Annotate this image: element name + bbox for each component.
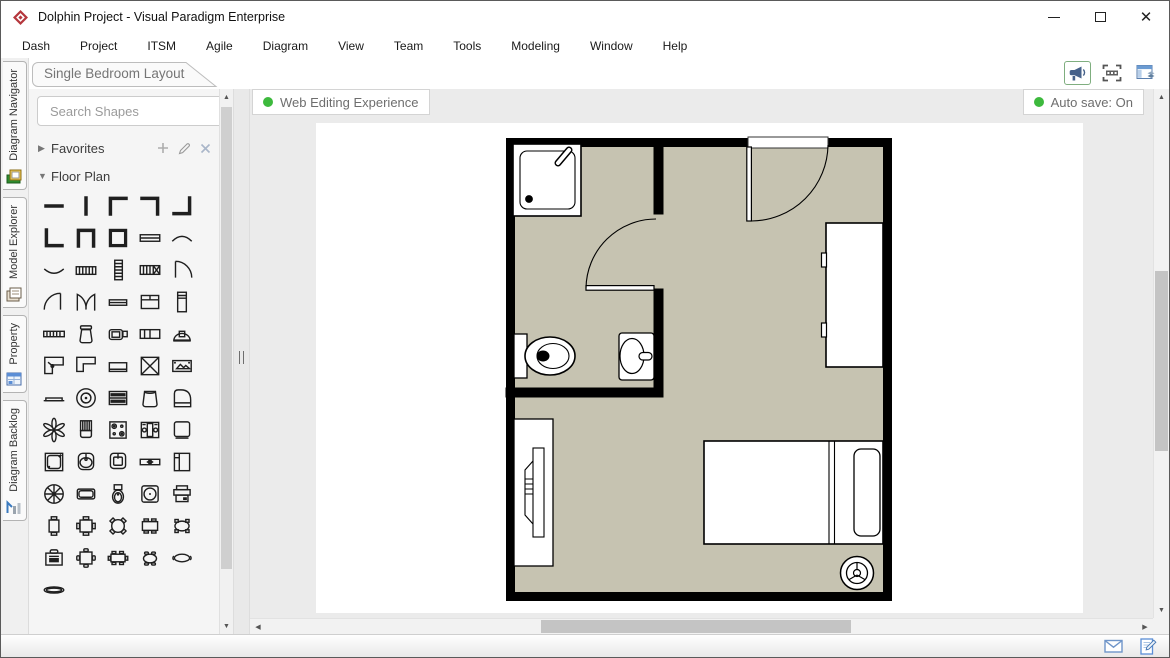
bathtub-icon — [73, 481, 99, 507]
badge-label: Auto save: On — [1051, 95, 1133, 110]
window-icon — [137, 225, 163, 251]
spoked-wheel-table-icon — [41, 481, 67, 507]
edit-icon[interactable] — [178, 142, 191, 155]
palette-shape-tall-cabinet[interactable] — [166, 286, 198, 318]
palette-shape-chest-of-drawers[interactable] — [102, 382, 134, 414]
menu-item-window[interactable]: Window — [575, 35, 648, 57]
palette-shape-oval-table-four-chairs[interactable] — [166, 510, 198, 542]
low-shelf-icon — [41, 385, 67, 411]
palette-shape-oval-table-two-chairs[interactable] — [166, 542, 198, 574]
scroll-right-icon[interactable]: ▶ — [1137, 619, 1153, 634]
laundry-basket-icon — [137, 385, 163, 411]
status-bar — [1, 634, 1169, 658]
tv-with-console-icon — [105, 321, 131, 347]
wall-vertical-icon — [73, 193, 99, 219]
expand-arrow-icon: ▼ — [38, 171, 51, 181]
printer-icon — [169, 481, 195, 507]
palette-shape-oval-table-four-chairs-alt[interactable] — [134, 542, 166, 574]
visual-paradigm-logo — [12, 9, 29, 26]
model-explorer-icon — [5, 285, 23, 303]
menu-item-project[interactable]: Project — [65, 35, 132, 57]
wall-u-shape-icon — [73, 225, 99, 251]
palette-shape-plant[interactable] — [38, 414, 70, 446]
palette-shape-printer[interactable] — [166, 478, 198, 510]
curved-wall-down-icon — [41, 257, 67, 283]
side-tab-diagram-navigator[interactable]: Diagram Navigator — [3, 61, 27, 190]
table-two-chairs-icon — [41, 513, 67, 539]
diagram-navigator-icon — [5, 167, 23, 185]
layout-panels-icon — [1136, 64, 1156, 82]
stairs-horizontal-icon — [73, 257, 99, 283]
layout-panels-button[interactable] — [1132, 61, 1159, 85]
minimize-icon — [1048, 17, 1060, 18]
palette-shape-grand-piano[interactable] — [166, 382, 198, 414]
oval-table-two-chairs-icon — [169, 545, 195, 571]
palette-shape-double-window-seat[interactable] — [134, 318, 166, 350]
palette-shape-sideboard[interactable] — [102, 350, 134, 382]
diagram-backlog-icon — [5, 498, 23, 516]
palette-shape-window-bench[interactable] — [134, 446, 166, 478]
palette-shape-rect-table-four-chairs[interactable] — [134, 510, 166, 542]
square-sink-icon — [105, 449, 131, 475]
door-quarter-right-icon — [169, 257, 195, 283]
minimize-button[interactable] — [1031, 1, 1077, 33]
toilet[interactable] — [514, 334, 575, 378]
fit-selection-icon — [1102, 64, 1122, 82]
ceiling-fan-icon — [73, 385, 99, 411]
palette-shape-wall-u-shape[interactable] — [70, 222, 102, 254]
office-desk-chair-icon — [41, 545, 67, 571]
green-dot-icon — [1034, 97, 1044, 107]
palette-shape-toilet[interactable] — [102, 478, 134, 510]
menu-item-view[interactable]: View — [323, 35, 379, 57]
palette-shape-round-side-table[interactable] — [134, 478, 166, 510]
double-door-icon — [73, 289, 99, 315]
shape-grid — [29, 190, 219, 606]
palette-shape-picture-frame[interactable] — [166, 350, 198, 382]
palette-scrollbar[interactable]: ▲ ▼ — [219, 89, 233, 634]
app-window: Dolphin Project - Visual Paradigm Enterp… — [0, 0, 1170, 658]
palette-shape-wall-lamp[interactable] — [166, 318, 198, 350]
palette-shape-refrigerator[interactable] — [166, 446, 198, 478]
plant-icon — [41, 417, 67, 443]
palette-shape-spoked-wheel-table[interactable] — [38, 478, 70, 510]
wall-horizontal-icon — [41, 193, 67, 219]
section-floor-plan[interactable]: ▼ Floor Plan — [29, 162, 219, 190]
palette-shape-stairs-with-landing[interactable] — [134, 254, 166, 286]
palette-shape-bathtub[interactable] — [70, 478, 102, 510]
tab-label: Single Bedroom Layout — [44, 66, 184, 81]
toilet-icon — [105, 481, 131, 507]
palette-shape-office-desk-chair[interactable] — [38, 542, 70, 574]
water-heater-icon — [73, 321, 99, 347]
palette-shape-stairs-horizontal[interactable] — [70, 254, 102, 286]
scroll-up-icon[interactable]: ▲ — [220, 89, 233, 105]
palette-shape-oval-sink[interactable] — [70, 446, 102, 478]
search-shapes-box[interactable] — [37, 96, 233, 126]
palette-shape-table-two-chairs[interactable] — [38, 510, 70, 542]
side-tab-diagram-backlog[interactable]: Diagram Backlog — [3, 400, 27, 521]
close-icon: ✕ — [1140, 10, 1153, 25]
palette-shape-round-table-four-chairs[interactable] — [102, 510, 134, 542]
corner-desk-right-icon — [73, 353, 99, 379]
palette-shape-corner-desk-left[interactable] — [38, 350, 70, 382]
menu-item-dash[interactable]: Dash — [7, 35, 65, 57]
fan[interactable] — [841, 557, 874, 590]
section-label: Favorites — [51, 141, 104, 156]
stove-top-icon — [105, 417, 131, 443]
palette-shape-stairs-vertical[interactable] — [102, 254, 134, 286]
diagram-page[interactable] — [316, 123, 1083, 613]
title-bar: Dolphin Project - Visual Paradigm Enterp… — [1, 1, 1169, 33]
palette-shape-wall-corner-top-right[interactable] — [134, 190, 166, 222]
chest-of-drawers-icon — [105, 385, 131, 411]
side-tab-label: Property — [8, 323, 20, 365]
side-tab-label: Diagram Navigator — [8, 69, 20, 161]
palette-shape-tv-with-console[interactable] — [102, 318, 134, 350]
palette-shape-washing-machine[interactable] — [134, 414, 166, 446]
wall-corner-top-right-icon — [137, 193, 163, 219]
menu-item-agile[interactable]: Agile — [191, 35, 248, 57]
window-title: Dolphin Project - Visual Paradigm Enterp… — [38, 10, 285, 24]
mail-icon[interactable] — [1104, 638, 1123, 654]
side-tab-label: Model Explorer — [8, 205, 20, 279]
tall-cabinet-icon — [169, 289, 195, 315]
announcement-button[interactable] — [1064, 61, 1091, 85]
auto-save-badge: Auto save: On — [1023, 89, 1144, 115]
search-input[interactable] — [48, 103, 228, 120]
diagram-canvas[interactable]: Web Editing Experience Auto save: On ▲ ▼… — [250, 89, 1169, 634]
shower[interactable] — [513, 144, 581, 216]
menu-bar: DashProjectITSMAgileDiagramViewTeamTools… — [1, 33, 1169, 58]
square-table-four-chairs-icon — [73, 513, 99, 539]
palette-shape-square-table-four-chairs-alt[interactable] — [70, 542, 102, 574]
menu-item-team[interactable]: Team — [379, 35, 438, 57]
picture-frame-icon — [169, 353, 195, 379]
panel-splitter[interactable] — [233, 89, 250, 634]
scroll-down-icon[interactable]: ▼ — [220, 618, 233, 634]
side-tab-model-explorer[interactable]: Model Explorer — [3, 197, 27, 308]
add-icon[interactable] — [157, 142, 169, 154]
palette-shape-small-appliance[interactable] — [166, 414, 198, 446]
palette-shape-wall-corner-bottom-right[interactable] — [166, 190, 198, 222]
round-side-table-icon — [137, 481, 163, 507]
palette-shape-wall-horizontal[interactable] — [38, 190, 70, 222]
palette-shape-rect-table-six-chairs[interactable] — [102, 542, 134, 574]
palette-shape-ceiling-fan[interactable] — [70, 382, 102, 414]
oval-rug-icon — [41, 577, 67, 603]
fit-selection-button[interactable] — [1098, 61, 1125, 85]
double-window-seat-icon — [137, 321, 163, 347]
tab-single-bedroom-layout[interactable]: Single Bedroom Layout — [31, 61, 221, 88]
elevator-icon — [137, 353, 163, 379]
palette-shape-shower-stall[interactable] — [38, 446, 70, 478]
round-table-four-chairs-icon — [105, 513, 131, 539]
rect-table-four-chairs-icon — [137, 513, 163, 539]
stairs-with-landing-icon — [137, 257, 163, 283]
high-back-chair-icon — [73, 417, 99, 443]
palette-shape-elevator[interactable] — [134, 350, 166, 382]
menu-item-help[interactable]: Help — [648, 35, 703, 57]
palette-shape-window[interactable] — [134, 222, 166, 254]
palette-shape-corner-desk-right[interactable] — [70, 350, 102, 382]
palette-shape-counter-with-sink[interactable] — [134, 286, 166, 318]
oval-table-four-chairs-alt-icon — [137, 545, 163, 571]
sliding-window-icon — [105, 289, 131, 315]
menu-item-tools[interactable]: Tools — [438, 35, 496, 57]
property-icon — [5, 370, 23, 388]
scroll-down-icon[interactable]: ▼ — [1154, 602, 1169, 618]
shape-palette: ▶ Favorites ▼ Floor Plan — [29, 89, 233, 634]
grand-piano-icon — [169, 385, 195, 411]
oval-sink-icon — [73, 449, 99, 475]
menu-item-diagram[interactable]: Diagram — [248, 35, 323, 57]
wall-corner-bottom-left-icon — [41, 225, 67, 251]
badge-label: Web Editing Experience — [280, 95, 419, 110]
section-favorites[interactable]: ▶ Favorites — [29, 134, 219, 162]
curved-wall-up-icon — [169, 225, 195, 251]
splitter-grip-icon — [239, 351, 244, 364]
hscroll-thumb[interactable] — [541, 620, 851, 633]
palette-shape-room-square[interactable] — [102, 222, 134, 254]
side-tab-strip: Diagram NavigatorModel ExplorerPropertyD… — [1, 58, 29, 634]
scroll-up-icon[interactable]: ▲ — [1154, 89, 1169, 105]
stairs-vertical-icon — [105, 257, 131, 283]
palette-shape-curved-wall-down[interactable] — [38, 254, 70, 286]
corner-desk-left-icon — [41, 353, 67, 379]
maximize-button[interactable] — [1077, 1, 1123, 33]
scroll-left-icon[interactable]: ◀ — [250, 619, 266, 634]
sideboard-icon — [105, 353, 131, 379]
palette-shape-double-door[interactable] — [70, 286, 102, 318]
palette-shape-low-shelf[interactable] — [38, 382, 70, 414]
scrollbar-corner — [1153, 618, 1169, 634]
wall-corner-bottom-right-icon — [169, 193, 195, 219]
washing-machine-icon — [137, 417, 163, 443]
room-square-icon — [105, 225, 131, 251]
side-tab-property[interactable]: Property — [3, 315, 27, 394]
green-dot-icon — [263, 97, 273, 107]
canvas-horizontal-scrollbar[interactable]: ◀ ▶ — [250, 618, 1153, 634]
announcement-icon — [1068, 65, 1087, 82]
palette-shape-stove-top[interactable] — [102, 414, 134, 446]
palette-shape-wall-vertical[interactable] — [70, 190, 102, 222]
side-tab-label: Diagram Backlog — [8, 408, 20, 492]
palette-shape-wall-corner-top-left[interactable] — [102, 190, 134, 222]
square-table-four-chairs-alt-icon — [73, 545, 99, 571]
sink[interactable] — [619, 333, 654, 380]
palette-shape-door-quarter-left[interactable] — [38, 286, 70, 318]
small-appliance-icon — [169, 417, 195, 443]
wardrobe[interactable] — [822, 223, 884, 367]
palette-shape-curved-wall-up[interactable] — [166, 222, 198, 254]
oval-table-four-chairs-icon — [169, 513, 195, 539]
palette-shape-square-sink[interactable] — [102, 446, 134, 478]
palette-shape-water-heater[interactable] — [70, 318, 102, 350]
canvas-vertical-scrollbar[interactable]: ▲ ▼ — [1153, 89, 1169, 618]
palette-shape-wall-corner-bottom-left[interactable] — [38, 222, 70, 254]
door-quarter-left-icon — [41, 289, 67, 315]
palette-shape-laundry-basket[interactable] — [134, 382, 166, 414]
web-editing-badge: Web Editing Experience — [252, 89, 430, 115]
palette-shape-high-back-chair[interactable] — [70, 414, 102, 446]
shower-stall-icon — [41, 449, 67, 475]
edit-diagram-icon[interactable] — [1139, 638, 1157, 655]
bed[interactable] — [704, 441, 883, 544]
window-bench-icon — [137, 449, 163, 475]
delete-icon[interactable] — [200, 143, 211, 154]
diagram-tab-bar: Single Bedroom Layout — [29, 58, 1169, 89]
maximize-icon — [1095, 12, 1106, 22]
palette-shape-piano-keyboard[interactable] — [38, 318, 70, 350]
vscroll-thumb[interactable] — [1155, 271, 1168, 451]
desk-with-chair[interactable] — [514, 419, 553, 566]
menu-item-itsm[interactable]: ITSM — [132, 35, 191, 57]
menu-item-modeling[interactable]: Modeling — [496, 35, 575, 57]
refrigerator-icon — [169, 449, 195, 475]
collapse-arrow-icon: ▶ — [38, 143, 51, 154]
counter-with-sink-icon — [137, 289, 163, 315]
palette-shape-square-table-four-chairs[interactable] — [70, 510, 102, 542]
wall-corner-top-left-icon — [105, 193, 131, 219]
palette-shape-sliding-window[interactable] — [102, 286, 134, 318]
piano-keyboard-icon — [41, 321, 67, 347]
rect-table-six-chairs-icon — [105, 545, 131, 571]
wall-lamp-icon — [169, 321, 195, 347]
palette-shape-oval-rug[interactable] — [38, 574, 70, 606]
palette-shape-door-quarter-right[interactable] — [166, 254, 198, 286]
palette-scroll-thumb[interactable] — [221, 107, 232, 569]
section-label: Floor Plan — [51, 169, 110, 184]
pillow — [854, 449, 880, 536]
close-button[interactable]: ✕ — [1123, 1, 1169, 33]
